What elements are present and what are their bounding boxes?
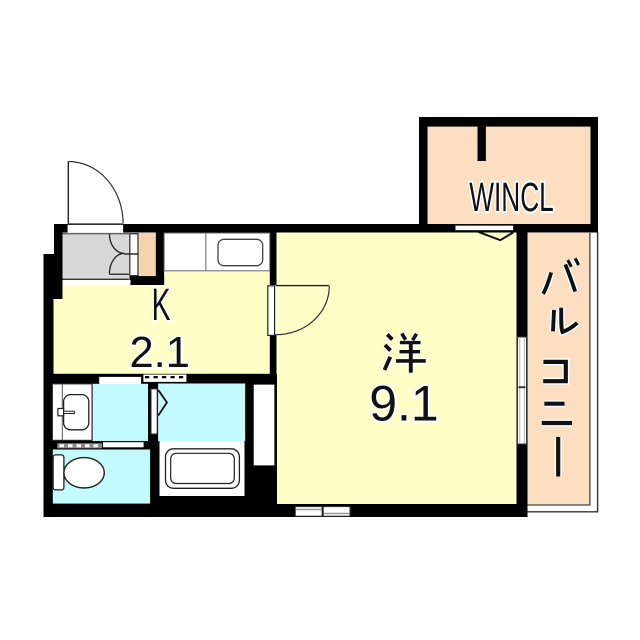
svg-text:WINCL: WINCL	[469, 175, 554, 220]
svg-text:9.1: 9.1	[369, 376, 439, 432]
svg-text:K: K	[152, 280, 171, 330]
svg-text:2.1: 2.1	[129, 329, 189, 377]
